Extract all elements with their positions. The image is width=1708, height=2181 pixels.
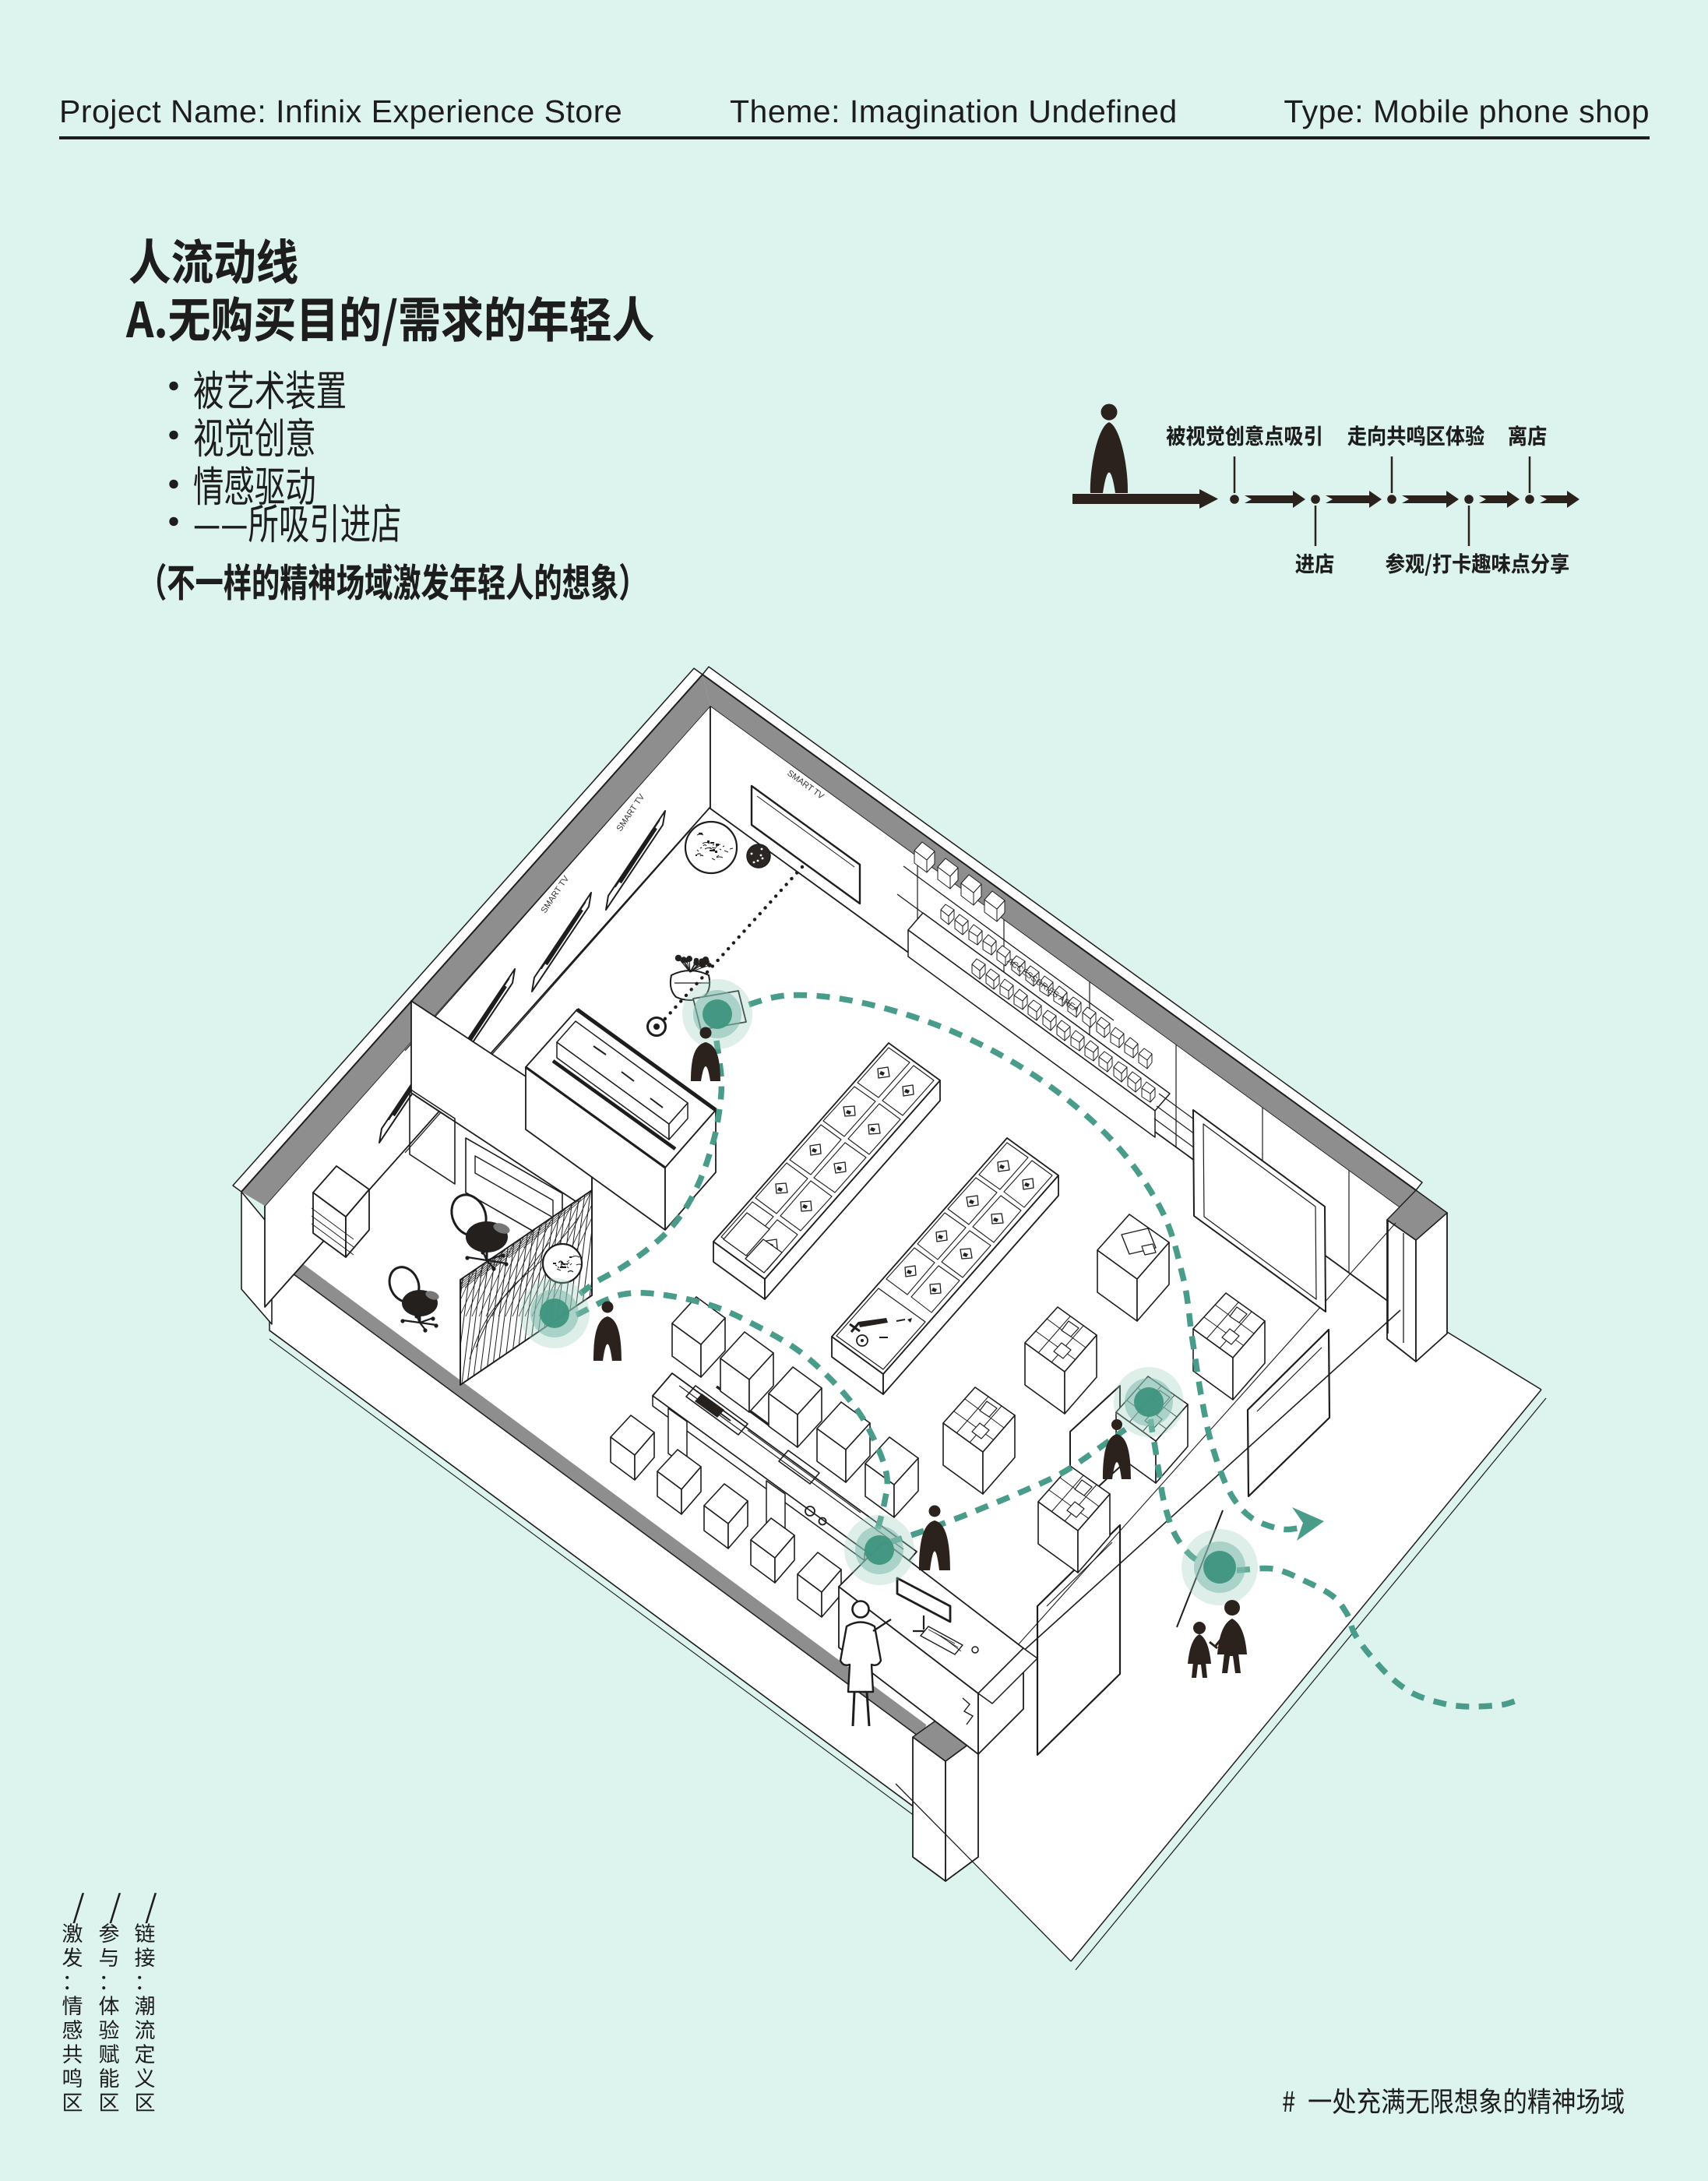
svg-text:Type: Mobile phone shop: Type: Mobile phone shop (1284, 93, 1650, 129)
svg-text:Project Name: Infinix Experien: Project Name: Infinix Experience Store (59, 93, 622, 129)
svg-text:Theme: Imagination Undefined: Theme: Imagination Undefined (730, 93, 1178, 129)
